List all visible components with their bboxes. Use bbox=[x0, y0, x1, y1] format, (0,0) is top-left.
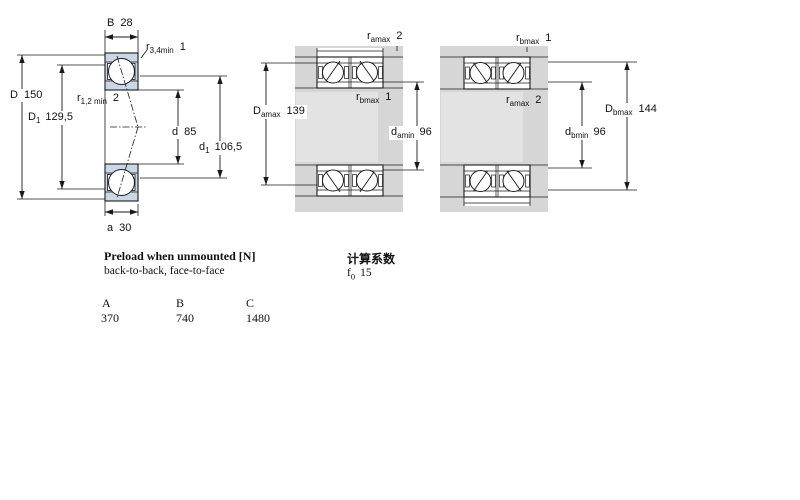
dim-label-r12: r1,2 min2 bbox=[77, 92, 119, 106]
dim-label-B: B28 bbox=[107, 17, 133, 30]
dim-label-r34: r3,4min1 bbox=[146, 41, 186, 55]
dim-label-damin: damin96 bbox=[389, 126, 434, 140]
preload-subtitle: back-to-back, face-to-face bbox=[104, 265, 225, 277]
dim-label-rbmax-b: rbmax1 bbox=[516, 32, 551, 46]
dim-label-D1: D1129,5 bbox=[26, 111, 75, 125]
dim-label-d: d85 bbox=[170, 126, 198, 139]
preload-table-value-A: 370 bbox=[101, 311, 119, 326]
dim-label-rbmax-a: rbmax1 bbox=[356, 91, 391, 105]
ball bbox=[323, 62, 344, 83]
calculation-factor-f0: f015 bbox=[347, 267, 372, 281]
ball bbox=[357, 170, 378, 191]
calculation-factors-title: 计算系数 bbox=[347, 250, 395, 267]
ball bbox=[323, 170, 344, 191]
dim-label-Damax: Damax139 bbox=[251, 105, 307, 119]
preload-title: Preload when unmounted [N] bbox=[104, 249, 255, 264]
left-bearing-rings bbox=[105, 53, 138, 201]
dim-label-ramax-b: ramax2 bbox=[506, 94, 541, 108]
dim-label-D: D150 bbox=[8, 89, 44, 102]
dim-label-Dbmax: Dbmax144 bbox=[603, 103, 659, 117]
preload-table-value-C: 1480 bbox=[246, 311, 270, 326]
dim-label-d1: d1106,5 bbox=[197, 141, 244, 155]
dim-label-a: a30 bbox=[107, 222, 131, 235]
dim-label-ramax-a: ramax2 bbox=[367, 30, 402, 44]
preload-table-value-B: 740 bbox=[176, 311, 194, 326]
dim-label-dbmin: dbmin96 bbox=[563, 126, 608, 140]
ball bbox=[109, 170, 135, 196]
preload-table-header-A: A bbox=[102, 296, 111, 311]
preload-table-header-C: C bbox=[246, 296, 254, 311]
ball bbox=[357, 62, 378, 83]
bearing-datasheet-page: B28 r3,4min1 D150 D1129,5 r1,2 min2 d85 … bbox=[0, 0, 800, 500]
preload-table-header-B: B bbox=[176, 296, 184, 311]
